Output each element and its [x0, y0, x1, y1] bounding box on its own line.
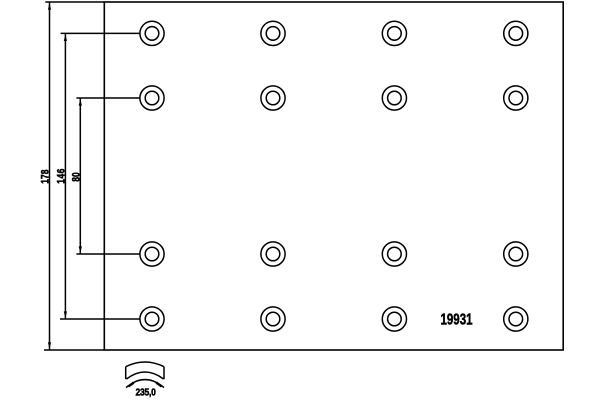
svg-text:80: 80	[70, 172, 82, 182]
svg-text:178: 178	[39, 169, 51, 184]
svg-text:146: 146	[56, 168, 68, 184]
svg-text:19931: 19931	[441, 310, 473, 328]
svg-text:235,0: 235,0	[136, 387, 156, 399]
